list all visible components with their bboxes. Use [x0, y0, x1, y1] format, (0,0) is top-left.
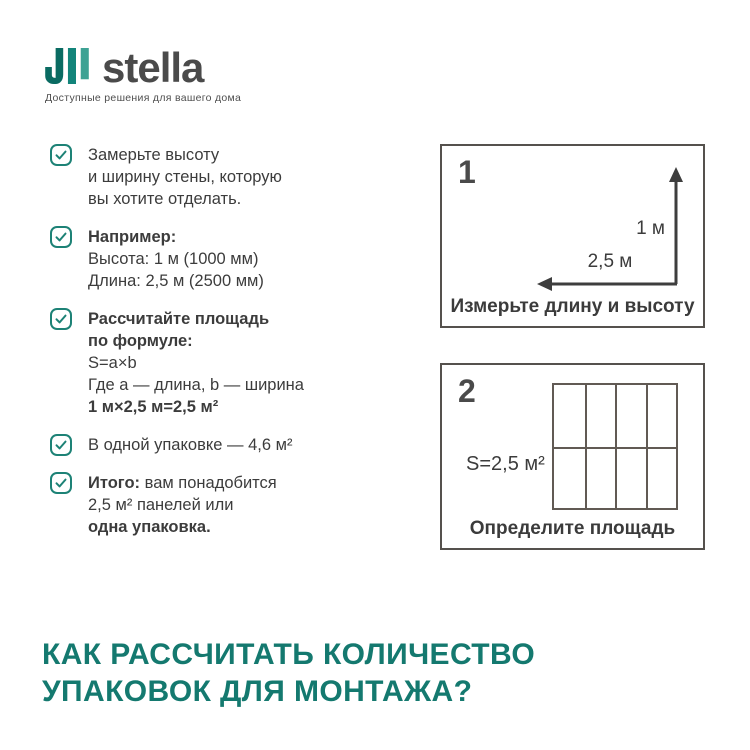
- text-line: 2,5 м² панелей или: [88, 494, 277, 516]
- checklist-item-text: Итого: вам понадобится 2,5 м² панелей ил…: [88, 472, 277, 538]
- stella-logo-icon: [45, 48, 89, 84]
- checklist: Замерьте высоту и ширину стены, которую …: [50, 144, 425, 554]
- checklist-item-text: Рассчитайте площадь по формуле: S=a×b Гд…: [88, 308, 304, 418]
- text-line: S=a×b: [88, 352, 304, 374]
- diagram-caption: Определите площадь: [442, 518, 703, 540]
- checklist-item-formula: Рассчитайте площадь по формуле: S=a×b Гд…: [50, 308, 425, 418]
- panel-cell: [585, 385, 616, 447]
- panel-cell: [646, 385, 677, 447]
- text-line: Длина: 2,5 м (2500 мм): [88, 270, 264, 292]
- text-line: В одной упаковке — 4,6 м²: [88, 434, 292, 456]
- diagram-step-1: 1 1 м 2,5 м Измерьте длину и высоту: [440, 144, 705, 328]
- checklist-item-total: Итого: вам понадобится 2,5 м² панелей ил…: [50, 472, 425, 538]
- panel-cell: [585, 447, 616, 509]
- checkmark-icon: [50, 144, 72, 166]
- logo: stella Доступные решения для вашего дома: [45, 46, 241, 104]
- height-measure-label: 1 м: [636, 218, 665, 240]
- text-line: Например:: [88, 226, 264, 248]
- text-line: Высота: 1 м (1000 мм): [88, 248, 264, 270]
- checklist-item-text: Замерьте высоту и ширину стены, которую …: [88, 144, 282, 210]
- diagram-step-2: 2 S=2,5 м² Определите площадь: [440, 363, 705, 550]
- brand-tagline: Доступные решения для вашего дома: [45, 92, 241, 104]
- text-line: по формуле:: [88, 330, 304, 352]
- brand-name: stella: [102, 51, 203, 84]
- text-line: вы хотите отделать.: [88, 188, 282, 210]
- diagram-caption: Измерьте длину и высоту: [442, 296, 703, 318]
- panel-cell: [615, 447, 646, 509]
- checklist-item-package: В одной упаковке — 4,6 м²: [50, 434, 425, 456]
- panel-cell: [615, 385, 646, 447]
- text-line: Где a — длина, b — ширина: [88, 374, 304, 396]
- checkmark-icon: [50, 308, 72, 330]
- panels-grid: [552, 383, 678, 510]
- text-line: одна упаковка.: [88, 516, 277, 538]
- area-label: S=2,5 м²: [466, 453, 545, 476]
- checklist-item-example: Например: Высота: 1 м (1000 мм) Длина: 2…: [50, 226, 425, 292]
- checklist-item-text: Например: Высота: 1 м (1000 мм) Длина: 2…: [88, 226, 264, 292]
- panel-cell: [554, 447, 585, 509]
- text-segment: вам понадобится: [140, 474, 277, 492]
- checklist-item-text: В одной упаковке — 4,6 м²: [88, 434, 292, 456]
- text-line: 1 м×2,5 м=2,5 м²: [88, 396, 304, 418]
- checkmark-icon: [50, 226, 72, 248]
- text-line: Замерьте высоту: [88, 144, 282, 166]
- text-line: Рассчитайте площадь: [88, 308, 304, 330]
- panel-cell: [646, 447, 677, 509]
- heading-line: УПАКОВОК ДЛЯ МОНТАЖА?: [42, 673, 535, 710]
- panel-cell: [554, 385, 585, 447]
- checkmark-icon: [50, 472, 72, 494]
- checklist-item-measure: Замерьте высоту и ширину стены, которую …: [50, 144, 425, 210]
- text-segment-bold: Итого:: [88, 474, 140, 492]
- heading-line: КАК РАССЧИТАТЬ КОЛИЧЕСТВО: [42, 636, 535, 673]
- checkmark-icon: [50, 434, 72, 456]
- text-line: и ширину стены, которую: [88, 166, 282, 188]
- infographic-page: stella Доступные решения для вашего дома…: [0, 0, 750, 750]
- step-number: 2: [458, 373, 476, 410]
- main-heading: КАК РАССЧИТАТЬ КОЛИЧЕСТВО УПАКОВОК ДЛЯ М…: [42, 636, 535, 710]
- text-line: Итого: вам понадобится: [88, 472, 277, 494]
- length-measure-label: 2,5 м: [570, 251, 650, 273]
